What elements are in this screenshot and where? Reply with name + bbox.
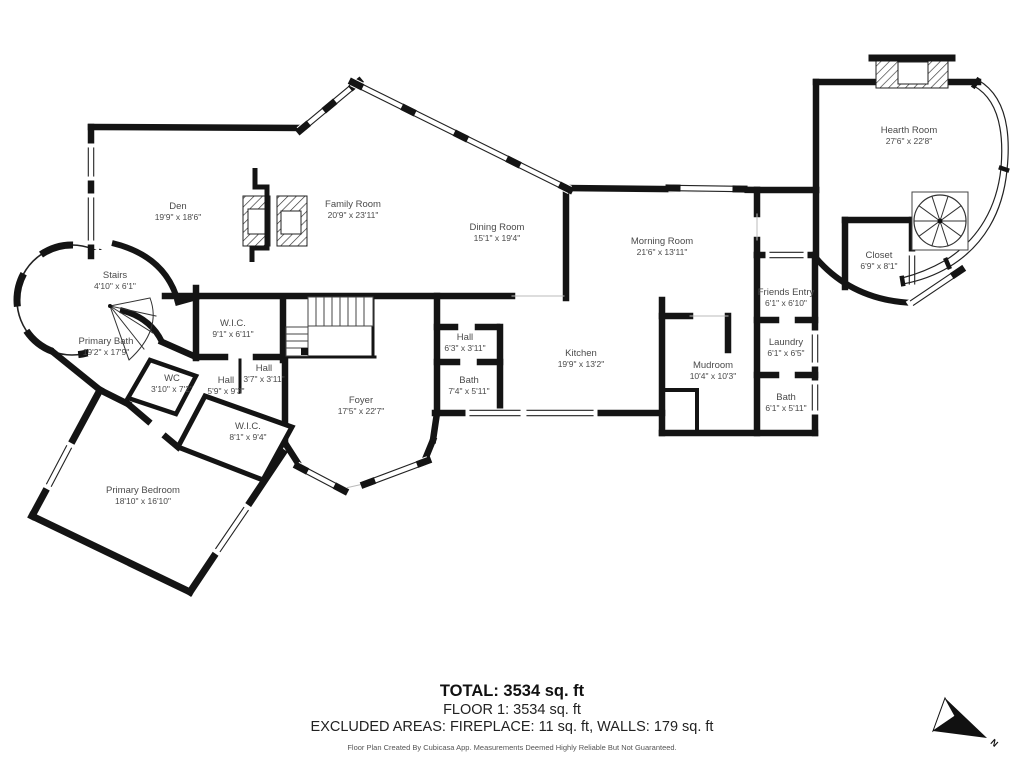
total-area-text: TOTAL: 3534 sq. ft [0, 682, 1024, 701]
stairs-and-fireplaces-layer [108, 58, 968, 360]
floor-plan-canvas [0, 0, 1024, 768]
footer-area-summary: TOTAL: 3534 sq. ft FLOOR 1: 3534 sq. ft … [0, 682, 1024, 752]
floor1-area-text: FLOOR 1: 3534 sq. ft [0, 702, 1024, 718]
staircase-icon [286, 297, 373, 356]
floor-plan-page: Den19'9" x 18'6"Family Room20'9" x 23'11… [0, 0, 1024, 768]
disclaimer-text: Floor Plan Created By Cubicasa App. Meas… [0, 743, 1024, 752]
fireplace-icon [243, 168, 307, 262]
fireplace-icon [872, 58, 952, 88]
north-arrow-icon: N [925, 690, 1015, 760]
windows-layer [47, 80, 1009, 552]
excluded-areas-text: EXCLUDED AREAS: FIREPLACE: 11 sq. ft, WA… [0, 719, 1024, 735]
spiral-staircase-icon [912, 192, 968, 250]
